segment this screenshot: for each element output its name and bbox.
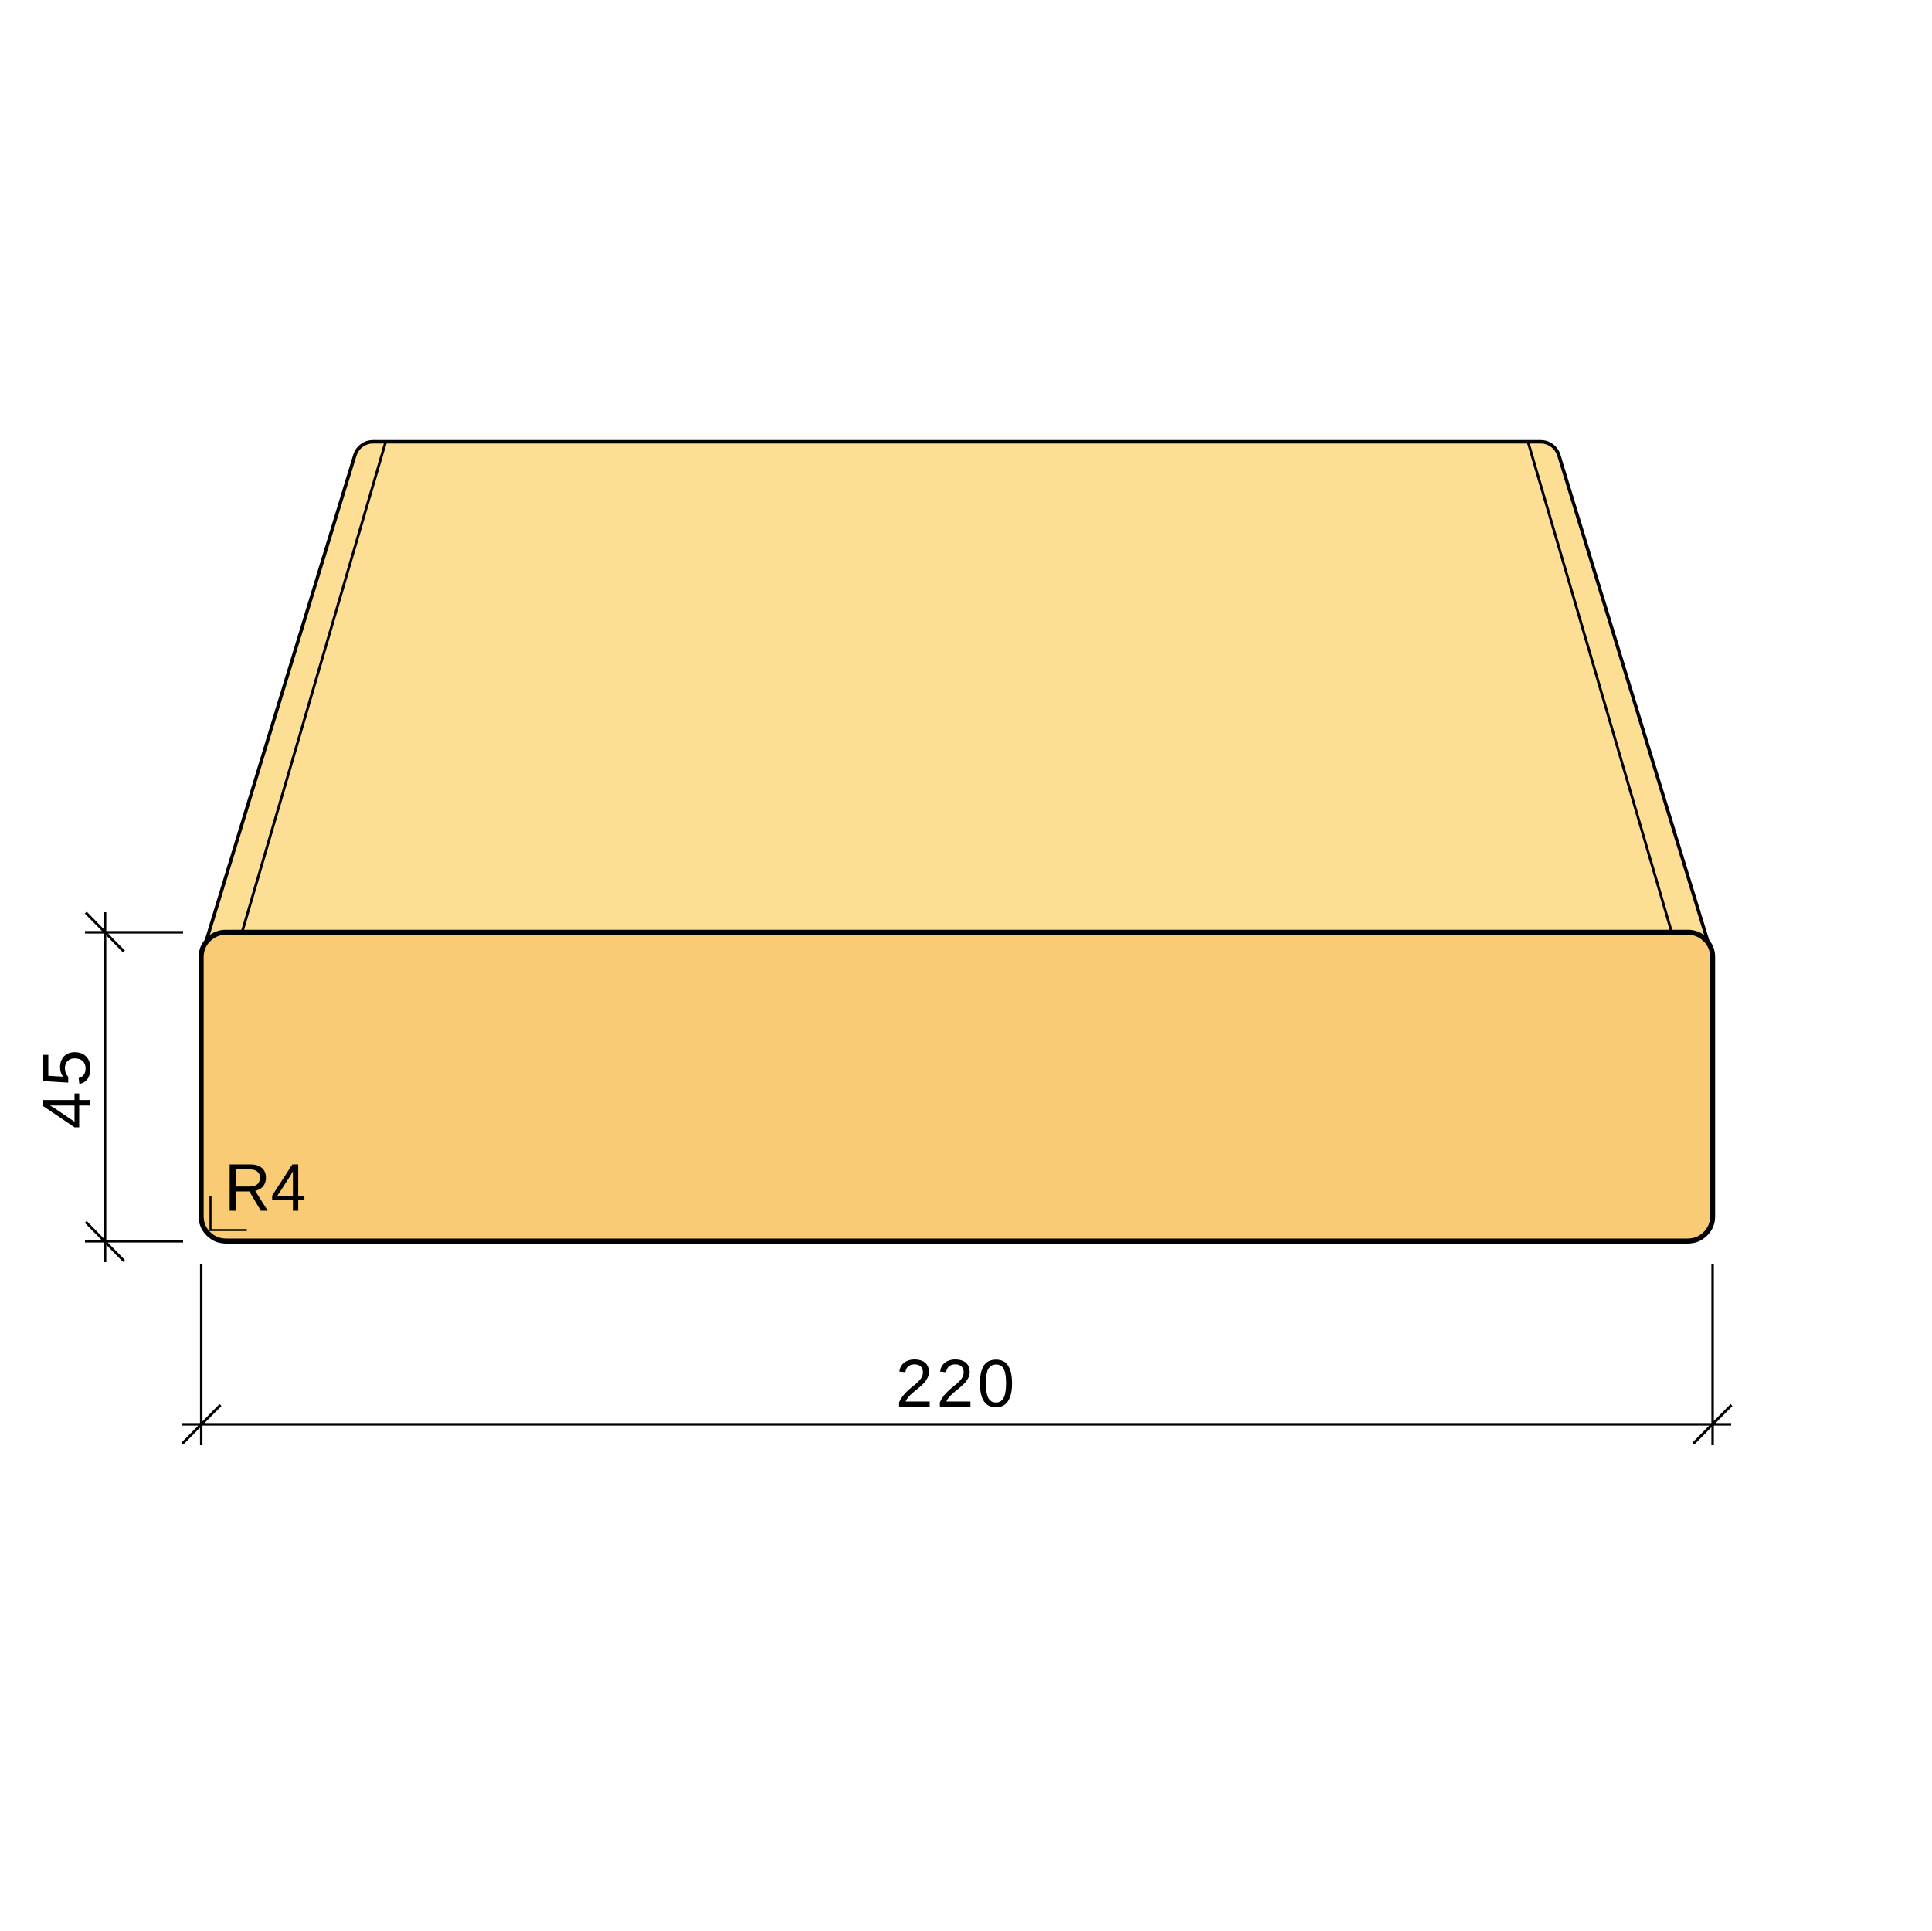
svg-text:R4: R4 <box>225 1151 307 1226</box>
svg-text:220: 220 <box>896 1346 1015 1421</box>
svg-text:45: 45 <box>29 1050 104 1129</box>
